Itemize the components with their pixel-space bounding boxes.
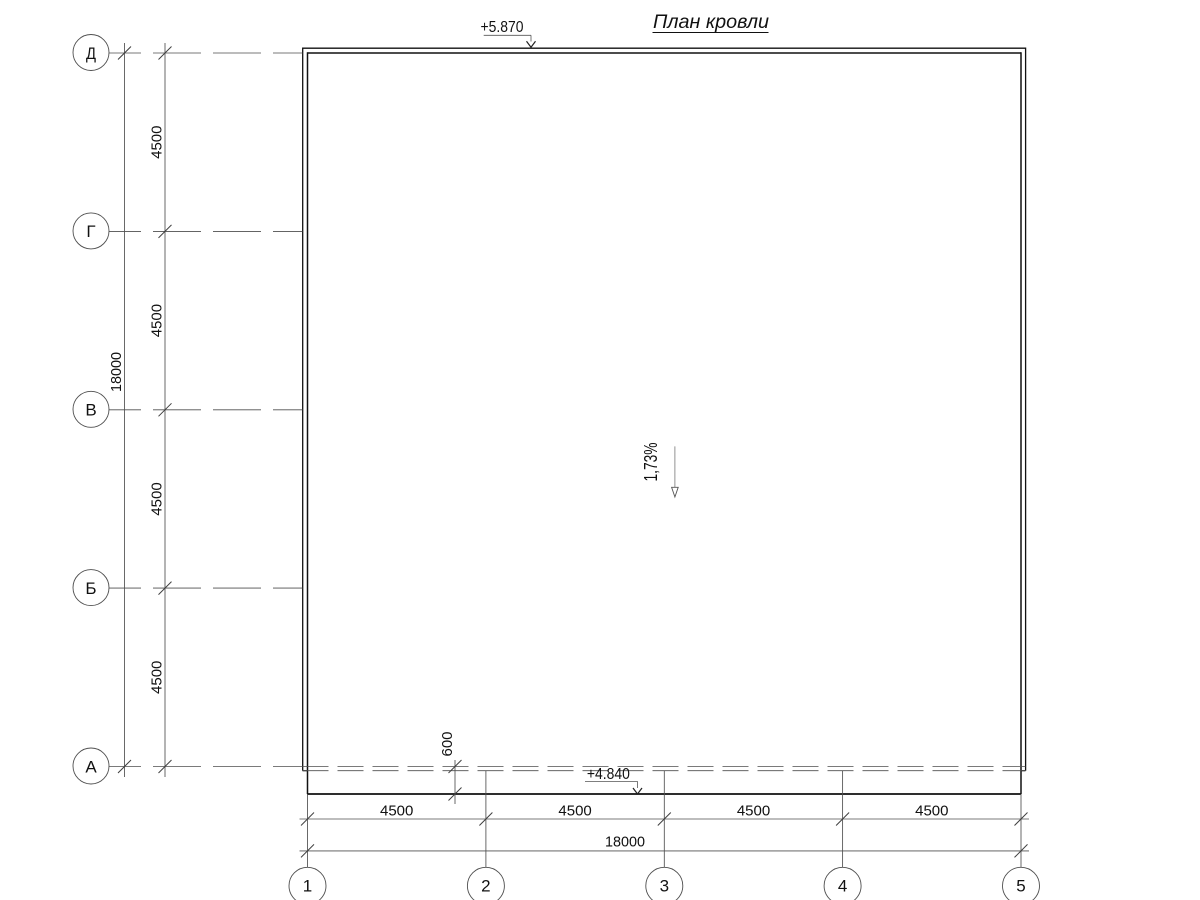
svg-text:4500: 4500 xyxy=(149,482,166,515)
svg-text:В: В xyxy=(85,401,96,420)
svg-text:5: 5 xyxy=(1016,877,1025,896)
svg-text:4500: 4500 xyxy=(915,803,948,820)
svg-text:+4.840: +4.840 xyxy=(587,766,630,783)
svg-text:18000: 18000 xyxy=(605,834,645,851)
svg-text:1: 1 xyxy=(303,877,312,896)
svg-text:4500: 4500 xyxy=(558,803,591,820)
svg-text:600: 600 xyxy=(439,731,456,756)
svg-text:1,73%: 1,73% xyxy=(641,443,661,482)
svg-text:4500: 4500 xyxy=(380,803,413,820)
svg-text:4500: 4500 xyxy=(149,661,166,694)
svg-text:А: А xyxy=(85,757,97,776)
svg-text:Г: Г xyxy=(86,222,95,241)
svg-text:План кровли: План кровли xyxy=(653,12,769,33)
svg-text:+5.870: +5.870 xyxy=(481,19,524,36)
svg-text:Б: Б xyxy=(85,579,96,598)
svg-text:18000: 18000 xyxy=(108,352,125,392)
svg-text:4500: 4500 xyxy=(737,803,770,820)
svg-text:2: 2 xyxy=(481,877,490,896)
svg-text:4500: 4500 xyxy=(149,304,166,337)
svg-text:Д: Д xyxy=(86,44,96,63)
svg-text:4: 4 xyxy=(838,877,847,896)
svg-text:3: 3 xyxy=(660,877,669,896)
svg-text:4500: 4500 xyxy=(149,126,166,159)
